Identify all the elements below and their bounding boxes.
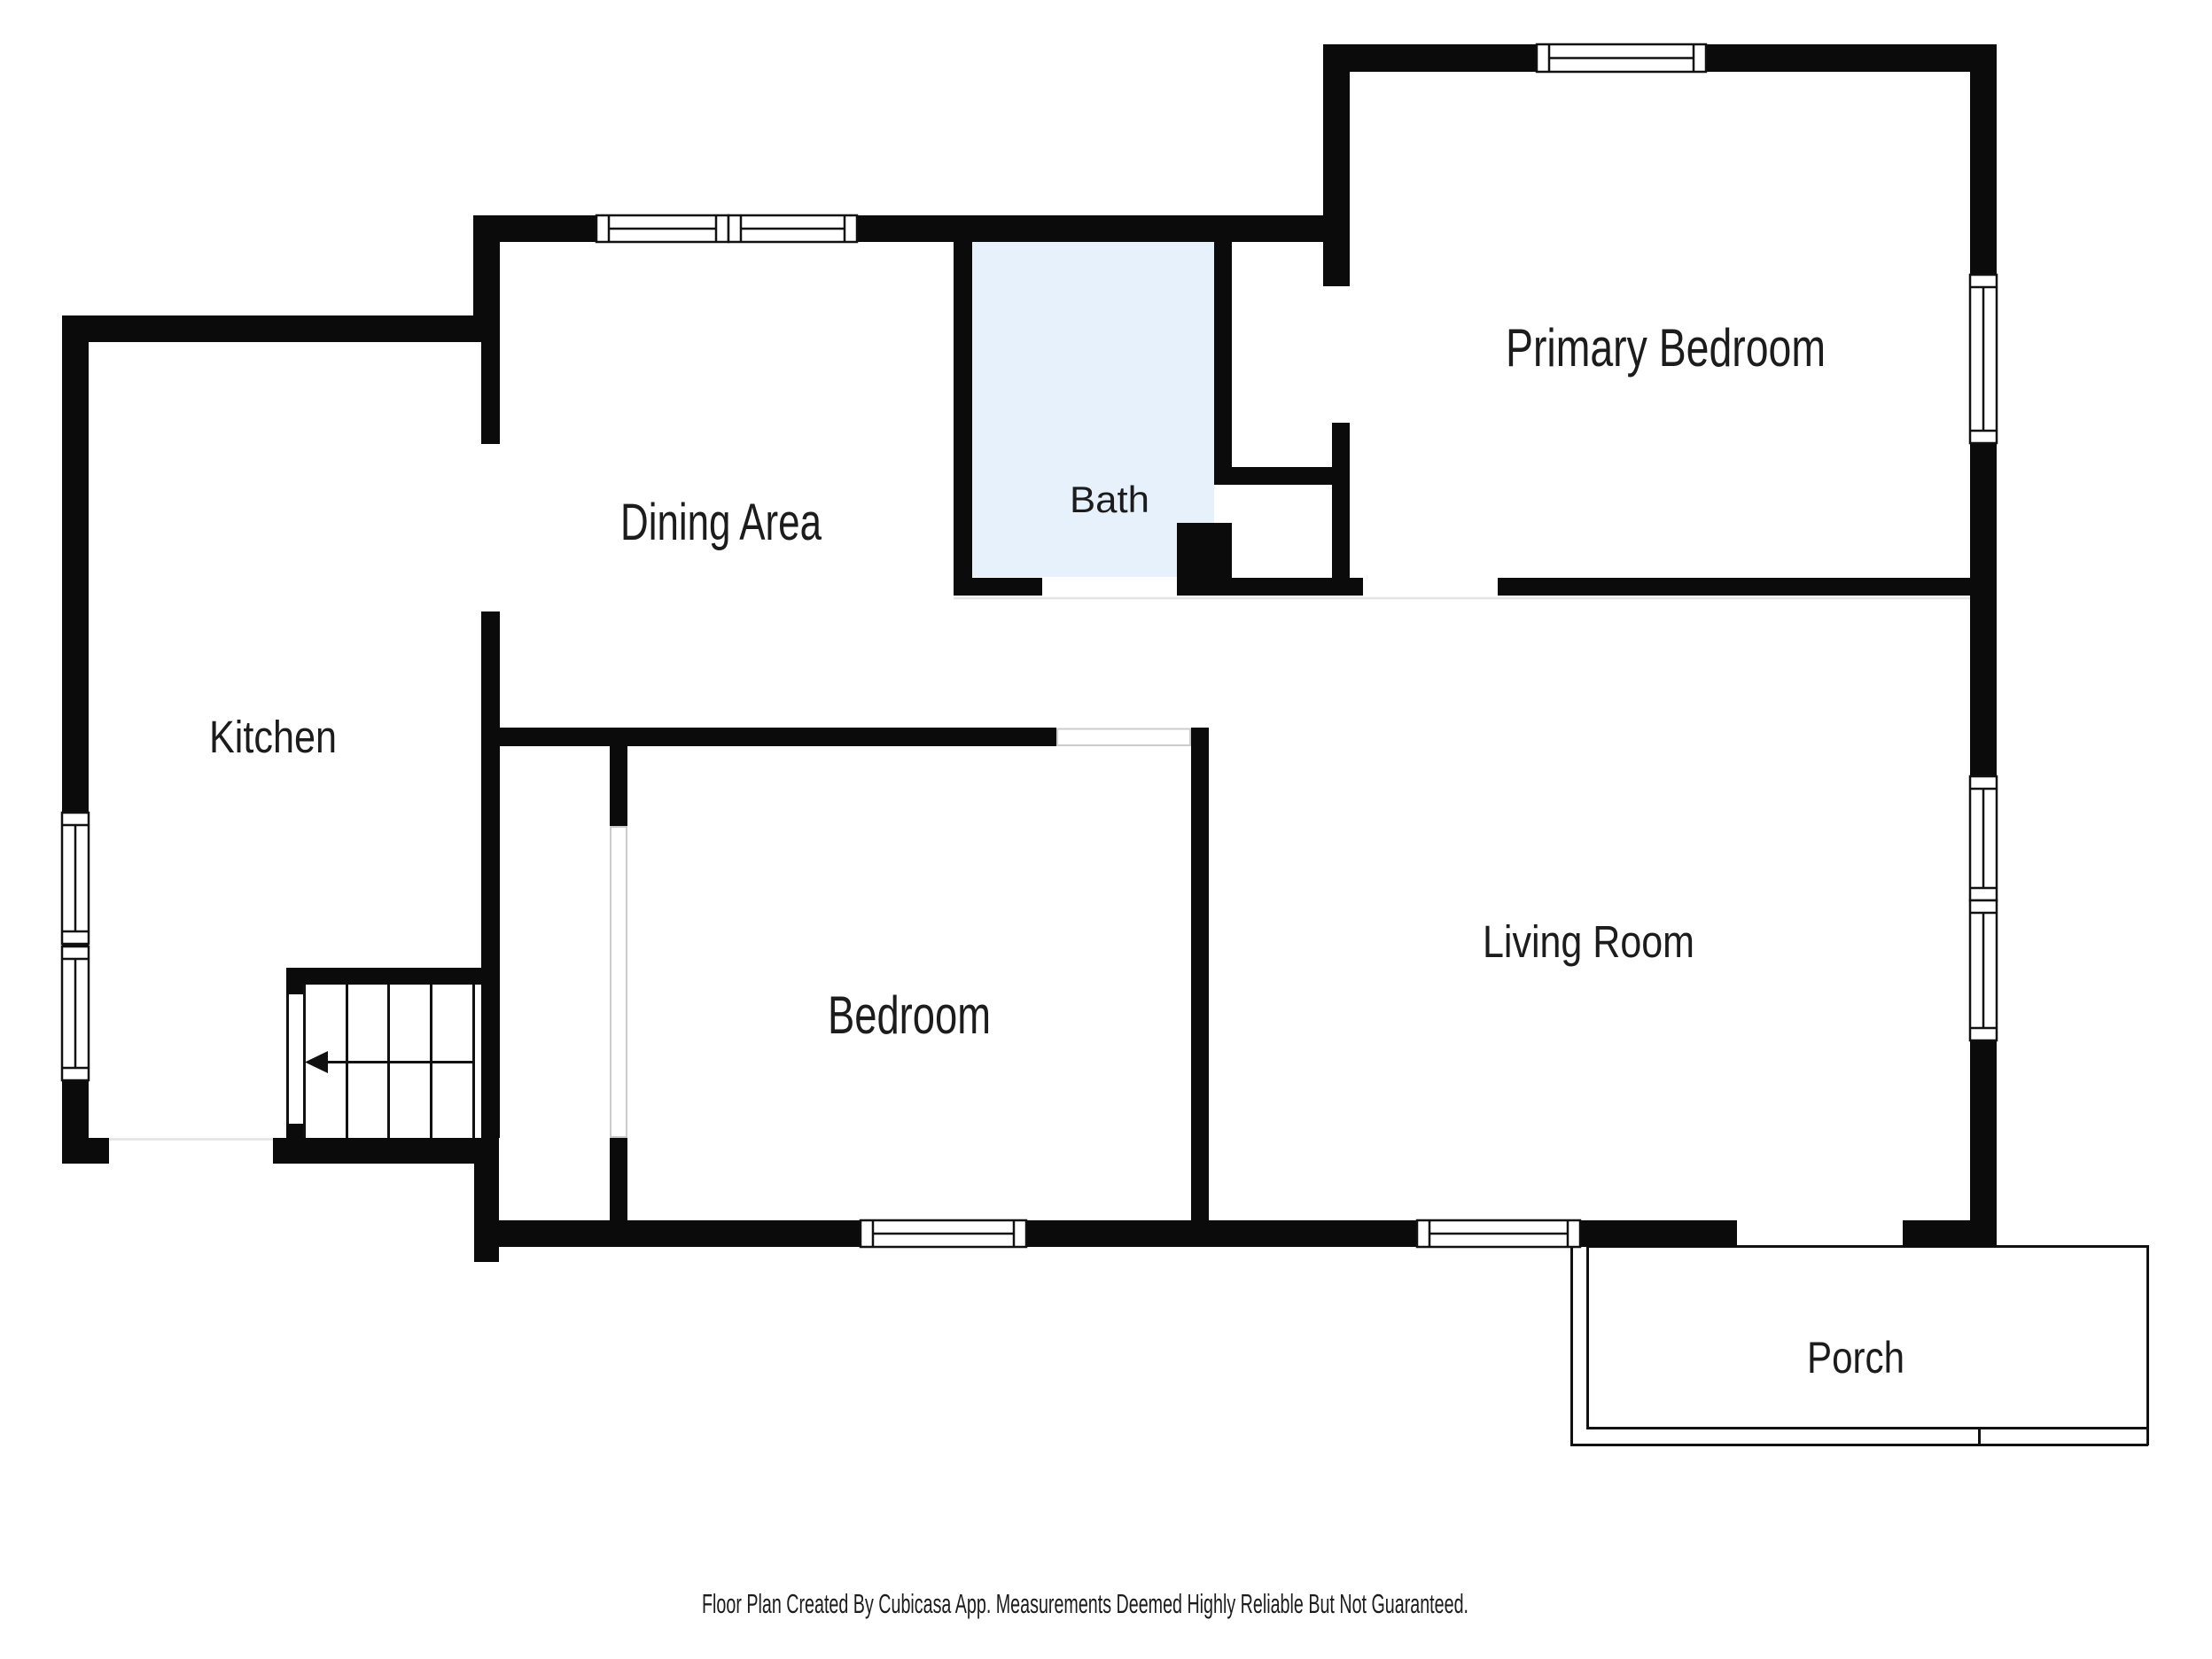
svg-text:Kitchen: Kitchen [209,712,337,762]
svg-text:Living Room: Living Room [1483,916,1694,967]
svg-text:Porch: Porch [1807,1333,1904,1382]
svg-text:Bath: Bath [1070,479,1149,520]
svg-text:Floor Plan Created By Cubicasa: Floor Plan Created By Cubicasa App. Meas… [702,1588,1468,1619]
svg-text:Dining Area: Dining Area [620,494,822,551]
svg-text:Bedroom: Bedroom [828,985,991,1045]
svg-text:Primary Bedroom: Primary Bedroom [1506,318,1826,378]
